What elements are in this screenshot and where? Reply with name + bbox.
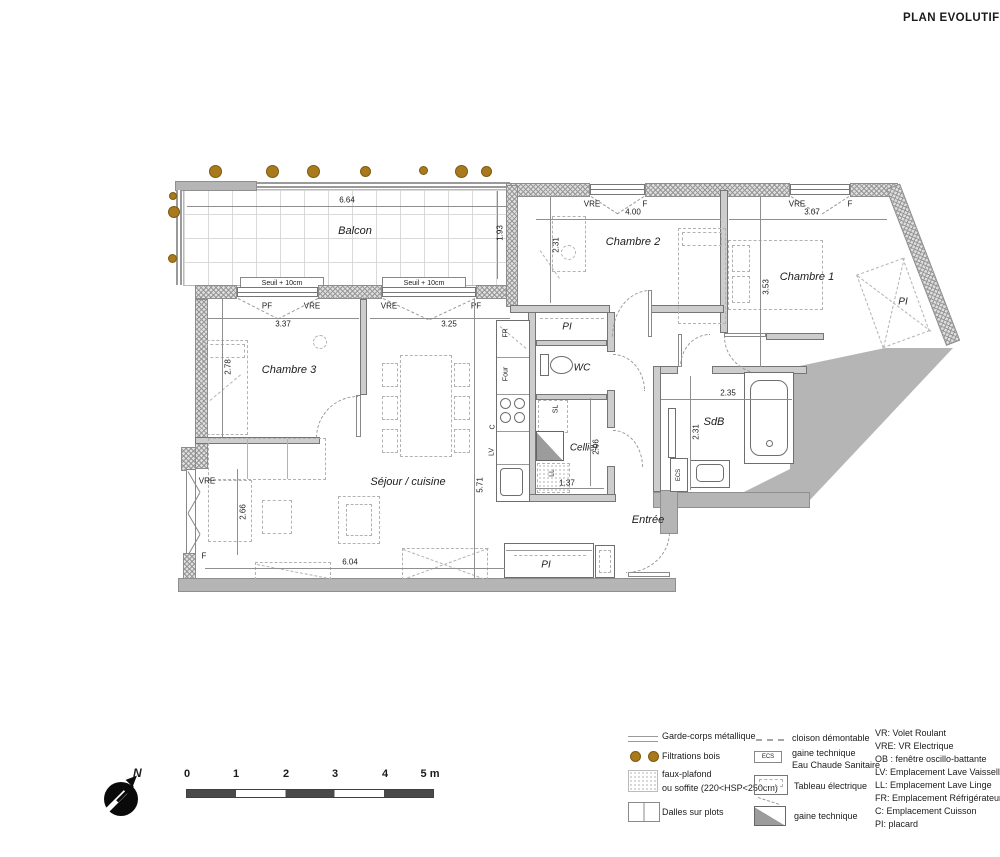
door-arc-wc (613, 354, 645, 391)
kitchen-sink (500, 468, 523, 496)
wood-filtration-dot (266, 165, 279, 178)
tag-fridge: FR (503, 328, 510, 337)
window-swing-mark (822, 196, 849, 214)
interior-wall (528, 494, 616, 502)
room-label-chambre2: Chambre 2 (606, 236, 660, 248)
tag-cooktop: C (490, 424, 497, 429)
interior-wall (360, 299, 367, 395)
legend-symbol-gaine (754, 806, 786, 826)
wood-filtration-dot (455, 165, 468, 178)
legend-gaine-ecs-2: Eau Chaude Sanitaire (792, 760, 880, 770)
tag-washer: LL (549, 469, 556, 477)
door-arc-sdb (680, 334, 710, 367)
legend-abbr-ll: LL: Emplacement Lave Linge (875, 779, 992, 792)
dim-sejour-depth: 5.71 (476, 477, 485, 493)
dim-chambre1-depth: 3.53 (762, 279, 771, 295)
entrance-door-leaf (628, 572, 670, 577)
chair (313, 335, 327, 349)
room-label-pi-chambre1: PI (898, 297, 907, 308)
cooktop-burner (514, 412, 525, 423)
wall-segment (175, 181, 257, 191)
exterior-wall (506, 185, 518, 307)
legend-cloison: cloison démontable (792, 733, 870, 743)
exterior-wall (195, 285, 237, 299)
closet-cross-line (857, 276, 931, 332)
interior-wall (510, 305, 610, 313)
window-chambre3 (237, 287, 318, 297)
north-label: N (133, 766, 142, 780)
scale-bar (186, 789, 434, 798)
tag-oven: Four (503, 367, 510, 381)
door-arc-chambre3 (316, 396, 358, 438)
dimension-line (661, 399, 792, 400)
exterior-wall (318, 285, 382, 299)
chair (454, 429, 470, 453)
exterior-wall (660, 490, 678, 534)
dimension-line (474, 299, 475, 578)
dim-sejour-window-left: 2.66 (239, 504, 248, 520)
window-chambre2 (590, 184, 645, 195)
pillow (732, 245, 750, 272)
tag-window: PF (471, 302, 481, 311)
legend-gaine: gaine technique (794, 811, 858, 821)
tag-window: F (202, 552, 207, 561)
wood-filtration-dot (360, 166, 371, 177)
tag-window: VRE (199, 477, 215, 486)
dim-chambre1-width: 3.07 (804, 208, 820, 217)
balcony-railing-left (176, 190, 182, 285)
exterior-wall (181, 447, 196, 471)
legend-symbol-ecs-box: ECS (754, 751, 782, 763)
dim-balcon-depth: 1.93 (496, 225, 505, 241)
exterior-wall (183, 553, 196, 580)
pillow (682, 232, 722, 246)
cooktop-burner (500, 398, 511, 409)
dimension-line (729, 219, 887, 220)
interior-wall (536, 340, 607, 346)
legend-abbr-vre: VRE: VR Electrique (875, 740, 954, 753)
tag-water-heater: ECS (676, 469, 682, 481)
toilet-tank (540, 354, 549, 376)
scale-tick-0: 0 (184, 768, 190, 780)
wood-filtration-dot (169, 192, 177, 200)
closet-track (506, 550, 592, 551)
scale-tick-3: 3 (332, 768, 338, 780)
window-swing-mark (238, 298, 279, 319)
counter-divider (497, 464, 529, 465)
dimension-line (370, 318, 510, 319)
floor-plan-sheet: PLAN EVOLUTIF 6.64 1.93 Balcon Seuil + 1… (0, 0, 1000, 857)
legend-abbr-ob: OB : fenêtre oscillo-battante (875, 753, 987, 766)
window-sejour-top (382, 287, 476, 297)
tag-dishwasher: LV (489, 448, 496, 456)
tag-window: VRE (789, 200, 805, 209)
dim-balcon-width: 6.64 (339, 196, 355, 205)
legend-symbol-dalles (628, 802, 660, 822)
technical-duct (536, 431, 564, 461)
wood-filtration-dot (481, 166, 492, 177)
sofa-cushion-divider (247, 439, 248, 479)
bath-ledge (744, 464, 800, 492)
dim-chambre3-width: 3.37 (275, 320, 291, 329)
legend-symbol-filtration-dot (630, 751, 641, 762)
counter-divider (497, 394, 529, 395)
room-label-balcon: Balcon (338, 225, 372, 237)
closet-door-mark (514, 555, 548, 556)
legend-abbr-vr: VR: Volet Roulant (875, 727, 946, 740)
legend-garde-corps: Garde-corps métallique (662, 731, 756, 741)
sofa-cushion-divider (287, 439, 288, 479)
room-label-wc: WC (574, 363, 591, 374)
wood-filtration-dot (168, 254, 177, 263)
cooktop-burner (500, 412, 511, 423)
chair (561, 245, 576, 260)
interior-wall (653, 366, 661, 492)
legend-symbol-tableau-inner (759, 779, 783, 787)
scale-tick-2: 2 (283, 768, 289, 780)
room-label-pi-bottom: PI (541, 560, 550, 571)
dimension-line (536, 488, 604, 489)
counter-divider (497, 431, 529, 432)
room-label-pi-top: PI (562, 322, 571, 333)
legend-filtrations: Filtrations bois (662, 751, 720, 761)
tag-window: F (643, 200, 648, 209)
door-arc-chambre2 (612, 290, 650, 337)
chair (382, 363, 398, 387)
dimension-line (205, 568, 505, 569)
tag-window: VRE (381, 302, 397, 311)
chair (382, 396, 398, 420)
legend-dalles: Dalles sur plots (662, 807, 724, 817)
armchair-seat (346, 504, 372, 536)
legend-symbol-tableau-line (758, 797, 779, 805)
dim-cellier-width: 1.37 (559, 479, 575, 488)
wood-filtration-dot (168, 206, 180, 218)
balcony-railing-top (257, 182, 510, 188)
legend-symbol-cloison (756, 739, 784, 741)
scale-tick-4: 4 (382, 768, 388, 780)
legend-abbr-fr: FR: Emplacement Réfrigérateur (875, 792, 1000, 805)
pillow (205, 344, 245, 358)
tag-window: F (848, 200, 853, 209)
dim-sdb-depth: 2.31 (692, 424, 701, 440)
legend-symbol-filtration-dot (648, 751, 659, 762)
dim-sejour-width: 6.04 (342, 558, 358, 567)
sofa (208, 438, 326, 480)
counter-divider (497, 357, 529, 358)
door-arc-cellier (613, 430, 643, 467)
legend-faux-plafond-1: faux-plafond (662, 769, 712, 779)
duct-strip (668, 408, 676, 458)
window-swing-mark (429, 298, 475, 320)
exterior-wall (506, 183, 590, 197)
dimension-line (536, 219, 721, 220)
chair (454, 363, 470, 387)
exterior-wall (178, 578, 676, 592)
entrance-door-arc (626, 532, 670, 573)
window-chambre1 (790, 184, 850, 195)
dim-cellier-depth: 2.06 (592, 439, 601, 455)
chair (454, 396, 470, 420)
tag-window: VRE (584, 200, 600, 209)
room-label-chambre3: Chambre 3 (262, 364, 316, 376)
pouf (262, 500, 292, 534)
structural-wall-wedge (790, 340, 955, 510)
room-label-entree: Entrée (632, 514, 664, 526)
bathtub-drain (766, 440, 773, 447)
toilet-bowl (550, 356, 573, 374)
dim-sdb-width: 2.35 (720, 389, 736, 398)
dining-table (400, 355, 452, 457)
legend-abbr-lv: LV: Emplacement Lave Vaisselle (875, 766, 1000, 779)
legend-symbol-garde-corps (628, 736, 658, 742)
room-label-sdb: SdB (704, 416, 725, 428)
dim-sejour-window: 3.25 (441, 320, 457, 329)
dim-chambre2-width: 4.00 (625, 208, 641, 217)
pillow (732, 276, 750, 303)
cooktop-burner (514, 398, 525, 409)
dim-chambre2-depth: 2.31 (552, 237, 561, 253)
interior-wall (607, 390, 615, 428)
legend-symbol-faux-plafond (628, 770, 658, 792)
legend-gaine-ecs-1: gaine technique (792, 748, 856, 758)
exterior-wall (645, 183, 790, 197)
legend-tableau: Tableau électrique (794, 781, 867, 791)
interior-wall (766, 333, 824, 340)
dim-chambre3-depth: 2.78 (224, 359, 233, 375)
tag-window: VRE (304, 302, 320, 311)
legend-symbol-tableau (754, 775, 788, 795)
scale-tick-5: 5 m (421, 768, 440, 780)
page-title: PLAN EVOLUTIF (903, 12, 1000, 24)
closet-track (540, 318, 604, 319)
wood-filtration-dot (307, 165, 320, 178)
electrical-panel-inner (599, 550, 611, 573)
closet-door-mark (552, 555, 586, 556)
wood-filtration-dot (419, 166, 428, 175)
legend-abbr-pi: PI: placard (875, 818, 918, 831)
scale-tick-1: 1 (233, 768, 239, 780)
bathroom-sink-basin (696, 464, 724, 482)
room-label-sejour: Séjour / cuisine (370, 476, 445, 488)
chair (382, 429, 398, 453)
legend-abbr-c: C: Emplacement Cuisson (875, 805, 977, 818)
dimension-line (187, 206, 509, 207)
tag-window: PF (262, 302, 272, 311)
wood-filtration-dot (209, 165, 222, 178)
tag-dryer: SL (553, 405, 560, 414)
